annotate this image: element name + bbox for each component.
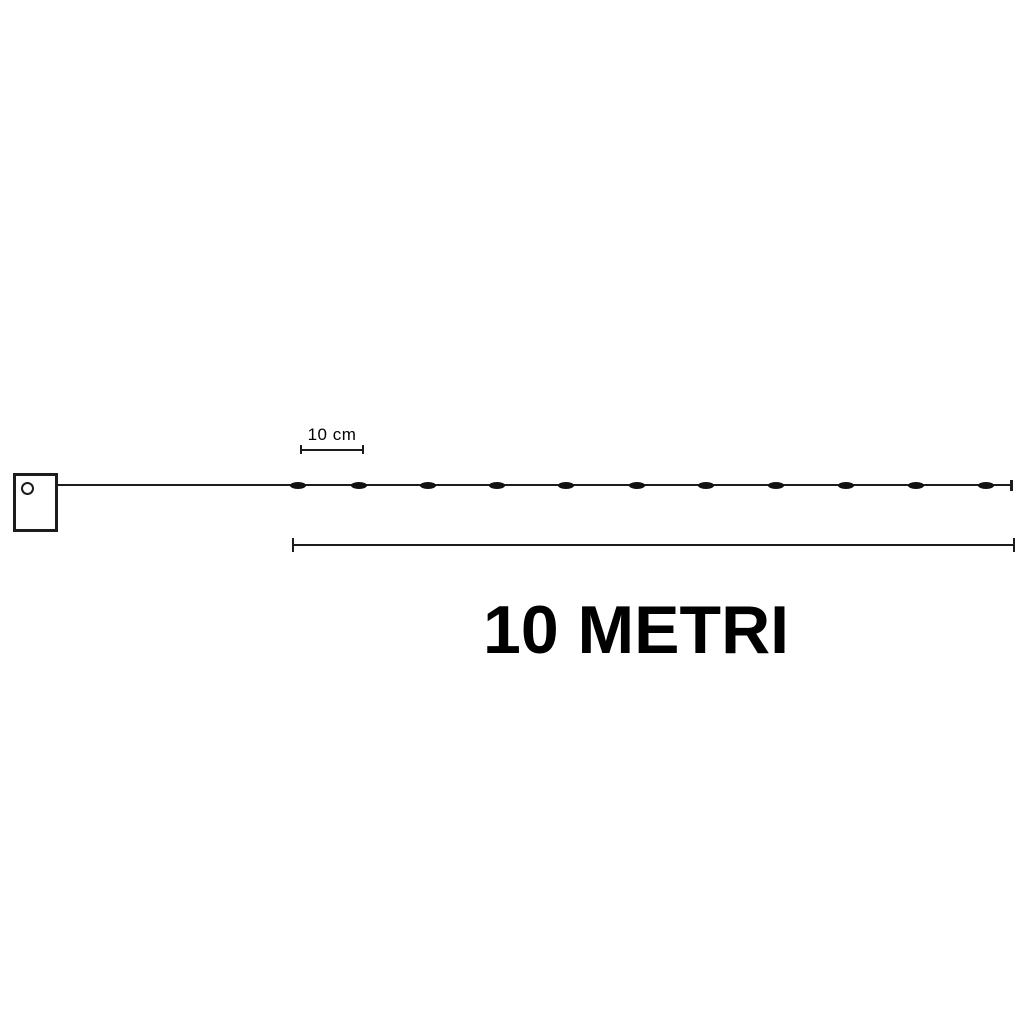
dimension-line <box>293 544 1014 546</box>
controller-box <box>13 473 58 532</box>
length-label: 10 METRI <box>483 596 789 664</box>
led-bulb <box>698 482 714 489</box>
wire-end-tick <box>1010 480 1013 491</box>
scale-label: 10 cm <box>299 425 365 445</box>
scale-bar-tick-right <box>362 445 364 454</box>
led-bulb <box>420 482 436 489</box>
dimension-tick-left <box>292 538 294 552</box>
led-bulb <box>558 482 574 489</box>
scale-bar-tick-left <box>300 445 302 454</box>
led-bulb <box>351 482 367 489</box>
led-bulb <box>978 482 994 489</box>
dimension-tick-right <box>1013 538 1015 552</box>
scale-bar-line <box>301 449 363 451</box>
led-bulb <box>290 482 306 489</box>
led-bulb <box>908 482 924 489</box>
led-bulb <box>629 482 645 489</box>
diagram-canvas: 10 cm 10 METRI <box>0 0 1024 1024</box>
cable-hole-icon <box>21 482 34 495</box>
string-wire <box>57 484 1012 486</box>
led-bulb <box>768 482 784 489</box>
led-bulb <box>838 482 854 489</box>
led-bulb <box>489 482 505 489</box>
